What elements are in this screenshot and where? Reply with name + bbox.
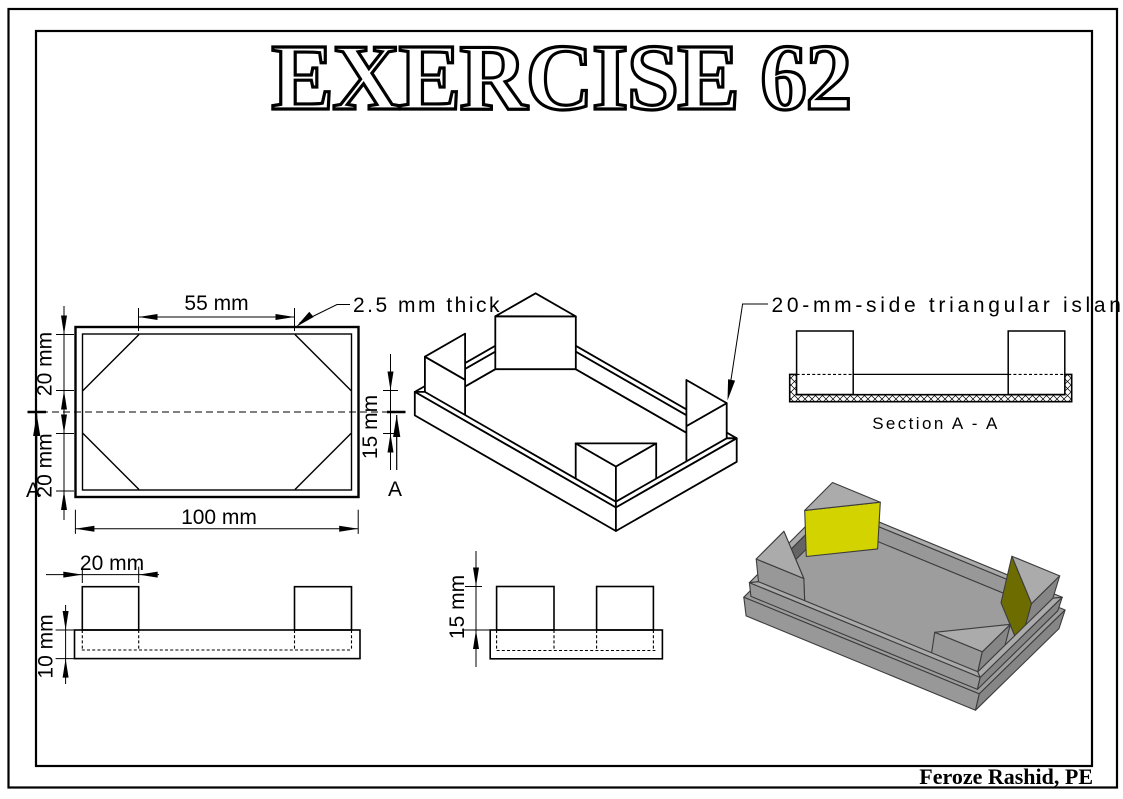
svg-text:55 mm: 55 mm	[184, 292, 248, 315]
svg-text:20-mm-side triangular island: 20-mm-side triangular island	[772, 294, 1123, 317]
svg-text:15 mm: 15 mm	[359, 395, 382, 459]
svg-text:Section A - A: Section A - A	[872, 414, 1000, 433]
svg-text:A: A	[388, 478, 402, 501]
svg-text:Feroze Rashid, PE: Feroze Rashid, PE	[919, 764, 1093, 789]
svg-text:10 mm: 10 mm	[35, 614, 58, 678]
svg-text:20 mm: 20 mm	[34, 332, 57, 396]
svg-text:100 mm: 100 mm	[181, 506, 257, 529]
svg-text:15 mm: 15 mm	[446, 575, 469, 639]
svg-text:20 mm: 20 mm	[34, 433, 57, 497]
svg-text:20 mm: 20 mm	[80, 552, 144, 575]
svg-text:EXERCISE 62: EXERCISE 62	[271, 26, 850, 130]
svg-text:2.5 mm thick: 2.5 mm thick	[353, 294, 502, 317]
